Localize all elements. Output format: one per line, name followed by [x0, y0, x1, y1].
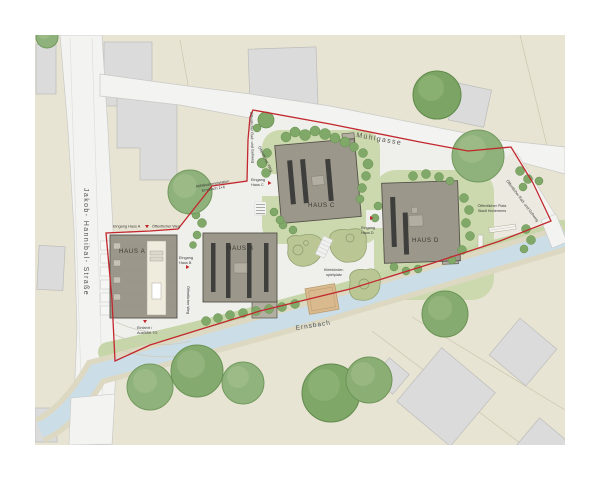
building-haus-d: [382, 181, 461, 267]
building-label-haus-a: HAUS A: [119, 248, 146, 255]
tree: [171, 345, 223, 397]
roof-box: [411, 207, 417, 213]
label-spielplatz-2: spielplatz: [326, 273, 342, 277]
roof-box: [409, 215, 423, 226]
atrium-detail: [152, 283, 161, 299]
street-label-jakob-hannibal: Jakob- Hannibal- Straße: [82, 188, 89, 296]
roof-box: [234, 263, 247, 273]
site-plan-page: Jakob- Hannibal- Straße Mühlgasse Ernsba…: [0, 0, 602, 480]
tree: [222, 362, 264, 404]
label-eingang-haus-c-1: Eingang: [251, 178, 265, 182]
label-eingang-haus-b-2: Haus B: [179, 261, 192, 265]
crosswalk: [255, 202, 266, 215]
label-eingang-haus-c-2: Haus C: [251, 183, 264, 187]
tree: [452, 130, 504, 182]
tree: [413, 71, 461, 119]
label-einfahrt-2: Ausfahrt TG: [137, 331, 157, 335]
building-haus-c: [274, 133, 361, 224]
existing-building: [36, 44, 56, 94]
roof-box: [312, 175, 325, 185]
tree: [346, 357, 392, 403]
label-eingang-haus-d-2: Haus D: [361, 231, 374, 235]
label-oeffentlicher-weg-sued: Öffentlicher Weg: [186, 286, 190, 314]
site-plan: Jakob- Hannibal- Straße Mühlgasse Ernsba…: [0, 0, 602, 480]
label-oeffentlicher-weg-a: Öffentlicher Weg: [152, 225, 180, 229]
label-eingang-haus-b-1: Eingang: [179, 256, 193, 260]
tree: [258, 112, 274, 128]
label-eingang-haus-d-1: Eingang: [361, 226, 375, 230]
label-eingang-haus-a: Eingang Haus A: [113, 225, 141, 229]
building-label-haus-c: HAUS C: [308, 202, 335, 209]
bridge-jakob-hannibal: [69, 394, 115, 445]
existing-building: [37, 245, 65, 290]
atrium-detail: [150, 251, 163, 255]
label-spielplatz-1: Kleinkinder-: [324, 268, 345, 272]
label-platz-1: Öffentlicher Platz: [478, 204, 507, 208]
label-einfahrt-1: Einfahrt /: [137, 326, 153, 330]
tree: [127, 364, 173, 410]
building-label-haus-b: HAUS B: [227, 245, 254, 252]
building-label-haus-d: HAUS D: [412, 237, 439, 244]
label-platz-2: Stadt Hohenems: [478, 209, 506, 213]
bench: [478, 235, 483, 248]
tree: [422, 291, 468, 337]
atrium-detail: [150, 257, 163, 261]
